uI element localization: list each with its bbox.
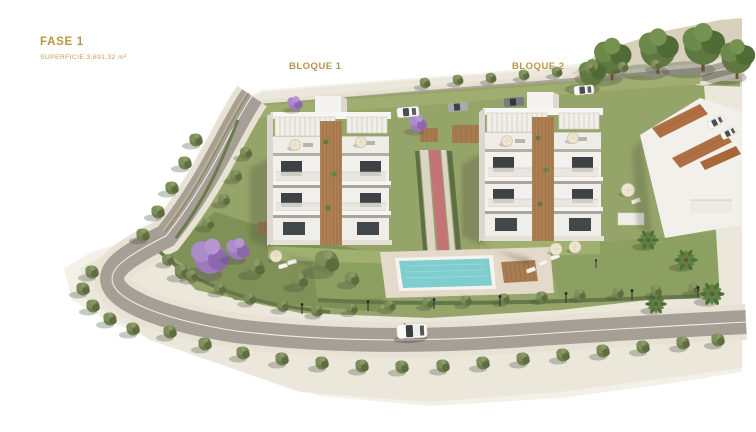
block-1-label: BLOQUE 1 xyxy=(289,61,342,72)
building-block-1 xyxy=(250,96,392,270)
block-2-label: BLOQUE 2 xyxy=(512,61,565,72)
phase-label: FASE 1 xyxy=(40,36,84,48)
site-plan-render: FASE 1 SUPERFICIE 3.691,32 m² BLOQUE 1 B… xyxy=(0,0,756,432)
building-block-2 xyxy=(462,92,604,266)
surface-area-label: SUPERFICIE 3.691,32 m² xyxy=(40,54,127,61)
car-on-road xyxy=(393,322,428,344)
render-canvas xyxy=(0,0,756,432)
